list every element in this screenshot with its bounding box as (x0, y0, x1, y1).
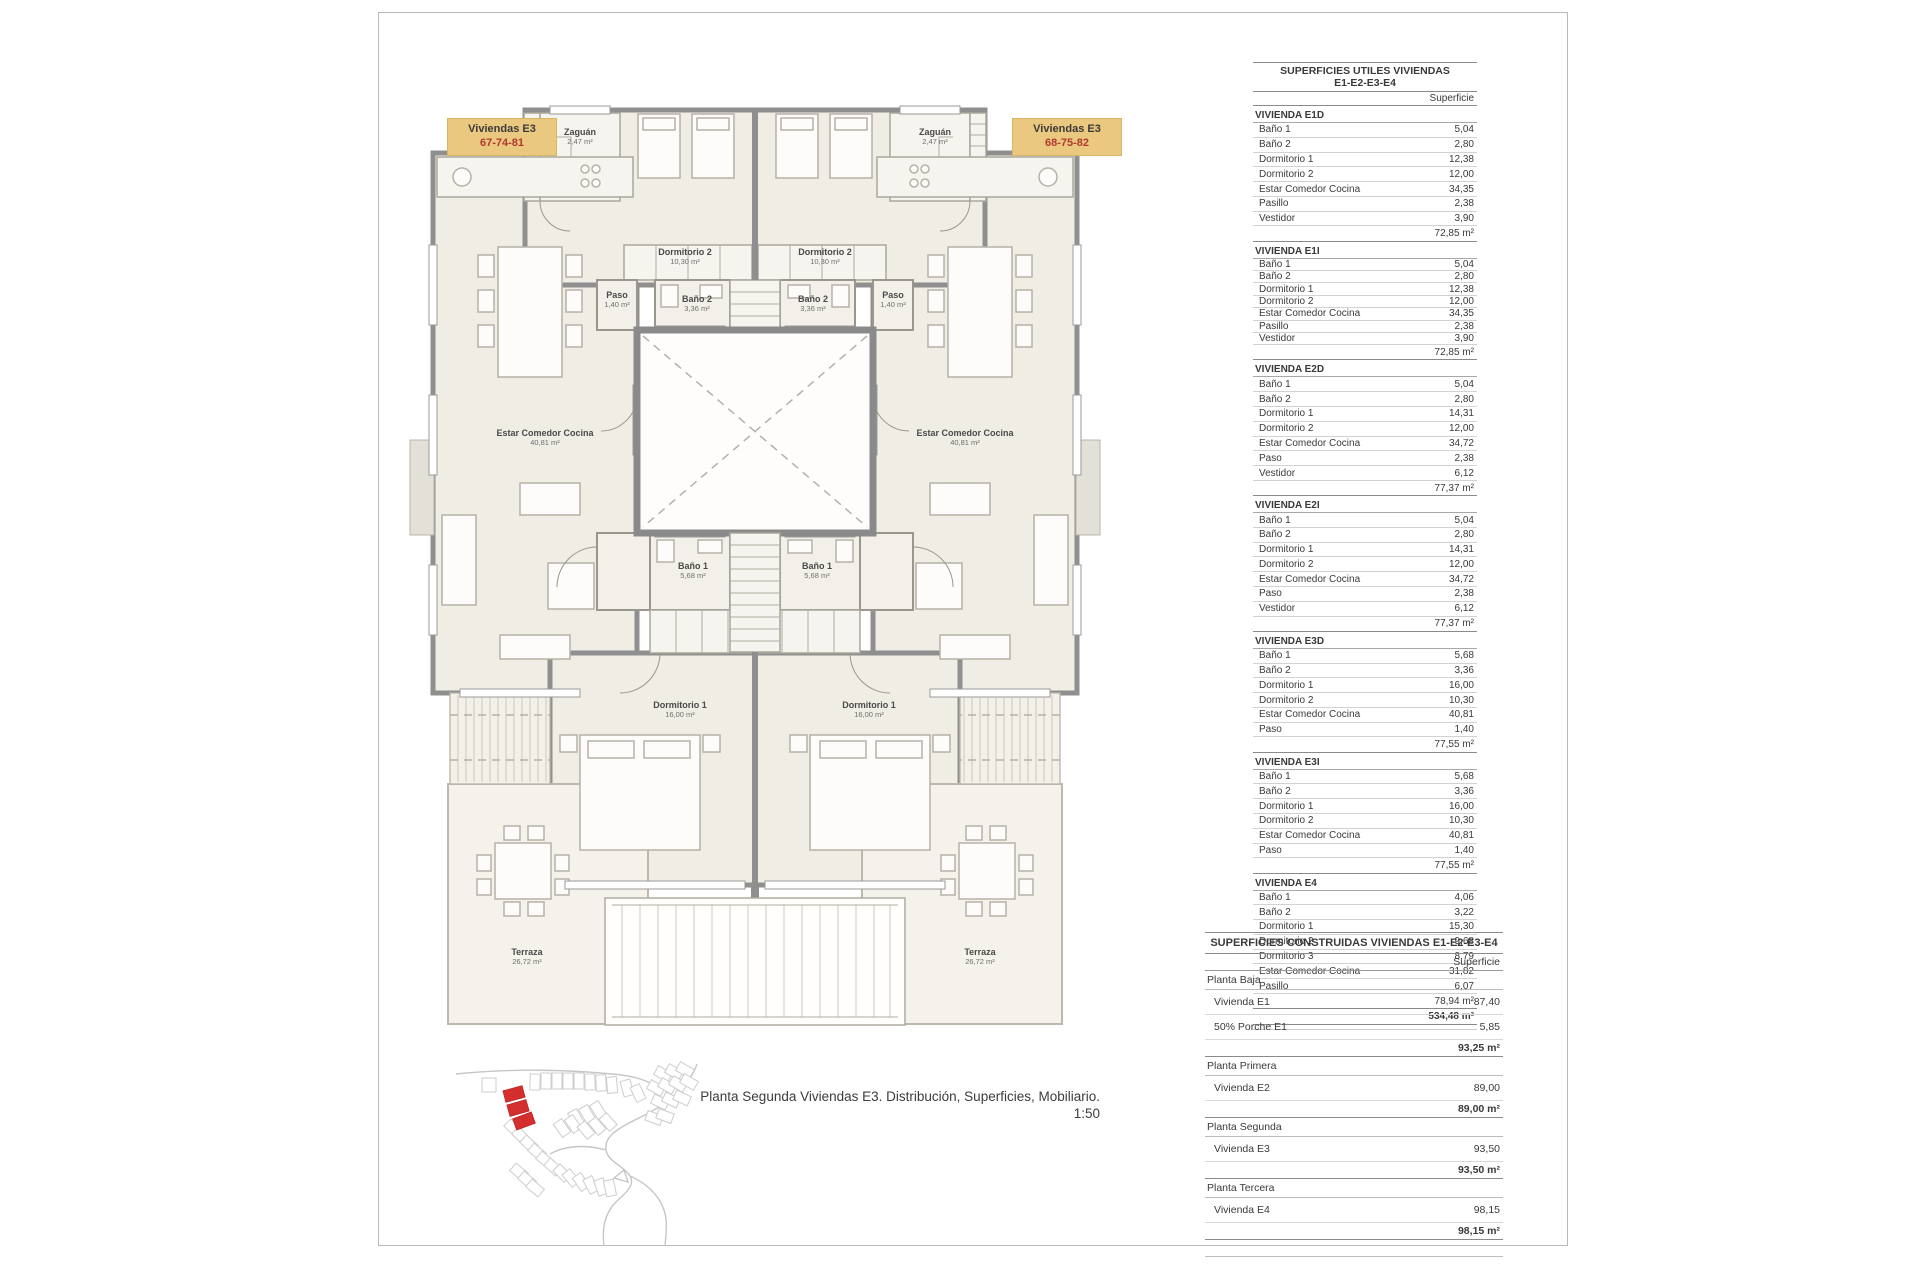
row-label: Estar Comedor Cocina (1259, 184, 1360, 195)
superficies-construidas-table: SUPERFICIES CONSTRUIDAS VIVIENDAS E1-E2-… (1205, 932, 1503, 1257)
row-value: 2,80 (1455, 394, 1474, 405)
table-row: Vivienda E393,50 (1205, 1137, 1503, 1162)
row-value: 10,30 (1449, 815, 1474, 826)
section-header: VIVIENDA E1D (1253, 109, 1477, 123)
row-label: Vestidor (1259, 213, 1295, 224)
utiles-section: VIVIENDA E1IBaño 15,04Baño 22,80Dormitor… (1253, 245, 1477, 361)
table-row: Pasillo2,38 (1253, 197, 1477, 212)
site-map-unit (541, 1073, 551, 1089)
utiles-table-body: VIVIENDA E1DBaño 15,04Baño 22,80Dormitor… (1253, 109, 1477, 1009)
group-header: Planta Primera (1205, 1057, 1503, 1076)
site-map-unit (585, 1074, 596, 1090)
table-row: Dormitorio 212,00 (1253, 557, 1477, 572)
section-header: VIVIENDA E4 (1253, 877, 1477, 891)
row-value: 3,36 (1455, 665, 1474, 676)
row-label: Dormitorio 2 (1259, 695, 1313, 706)
table-row: Vestidor3,90 (1253, 212, 1477, 227)
row-value: 12,00 (1449, 169, 1474, 180)
row-value: 93,50 (1474, 1143, 1500, 1155)
group-total: 93,50 m² (1205, 1162, 1503, 1179)
utiles-section: VIVIENDA E3IBaño 15,68Baño 23,36Dormitor… (1253, 756, 1477, 874)
row-value: 2,38 (1455, 321, 1474, 332)
utiles-section: VIVIENDA E2DBaño 15,04Baño 22,80Dormitor… (1253, 363, 1477, 496)
table-row: Estar Comedor Cocina34,35 (1253, 182, 1477, 197)
row-label: Vivienda E3 (1214, 1143, 1270, 1155)
table-row: Baño 22,80 (1253, 528, 1477, 543)
row-label: Baño 2 (1259, 907, 1291, 918)
row-value: 6,12 (1455, 603, 1474, 614)
row-value: 1,40 (1455, 724, 1474, 735)
table-row: Dormitorio 212,00 (1253, 167, 1477, 182)
table-row: Estar Comedor Cocina40,81 (1253, 829, 1477, 844)
unit-label-right-numbers: 68-75-82 (1013, 136, 1121, 150)
row-label: Dormitorio 1 (1259, 544, 1313, 555)
row-label: Baño 1 (1259, 892, 1291, 903)
row-label: Vivienda E4 (1214, 1204, 1270, 1216)
section-header: VIVIENDA E2D (1253, 363, 1477, 377)
row-value: 2,80 (1455, 271, 1474, 282)
row-label: Dormitorio 2 (1259, 815, 1313, 826)
section-total: 72,85 m² (1253, 226, 1477, 241)
group-total: 98,15 m² (1205, 1223, 1503, 1240)
row-label: Baño 1 (1259, 650, 1291, 661)
row-label: Baño 2 (1259, 786, 1291, 797)
row-value: 40,81 (1449, 709, 1474, 720)
row-value: 10,30 (1449, 695, 1474, 706)
section-header: VIVIENDA E3D (1253, 635, 1477, 649)
row-label: Dormitorio 1 (1259, 284, 1313, 295)
table-row: Baño 23,22 (1253, 905, 1477, 920)
table-row: Estar Comedor Cocina34,72 (1253, 572, 1477, 587)
table-row: Baño 22,80 (1253, 271, 1477, 283)
construidas-col-header: Superficie (1205, 954, 1503, 971)
row-label: Estar Comedor Cocina (1259, 438, 1360, 449)
row-value: 87,40 (1474, 996, 1500, 1008)
section-total: 77,37 m² (1253, 481, 1477, 496)
table-row: Vivienda E498,15 (1205, 1198, 1503, 1223)
table-row: Vestidor6,12 (1253, 466, 1477, 481)
row-label: Paso (1259, 588, 1282, 599)
table-row: Dormitorio 210,30 (1253, 814, 1477, 829)
table-row: Estar Comedor Cocina34,72 (1253, 437, 1477, 452)
table-row: Pasillo2,38 (1253, 321, 1477, 333)
row-label: Paso (1259, 845, 1282, 856)
table-row: Baño 15,04 (1253, 123, 1477, 138)
section-total: 77,37 m² (1253, 617, 1477, 632)
row-value: 12,00 (1449, 559, 1474, 570)
row-label: Baño 2 (1259, 394, 1291, 405)
row-value: 5,04 (1455, 379, 1474, 390)
table-row: Baño 15,68 (1253, 649, 1477, 664)
row-value: 12,00 (1449, 423, 1474, 434)
unit-label-left-numbers: 67-74-81 (448, 136, 556, 150)
table-row: Dormitorio 212,00 (1253, 422, 1477, 437)
row-value: 89,00 (1474, 1082, 1500, 1094)
floor-plan-drawing (400, 95, 1130, 1045)
row-label: Paso (1259, 724, 1282, 735)
utiles-section: VIVIENDA E3DBaño 15,68Baño 23,36Dormitor… (1253, 635, 1477, 753)
row-value: 2,80 (1455, 139, 1474, 150)
row-label: Dormitorio 2 (1259, 559, 1313, 570)
row-label: Paso (1259, 453, 1282, 464)
row-value: 4,06 (1455, 892, 1474, 903)
row-label: Estar Comedor Cocina (1259, 830, 1360, 841)
table-row: Dormitorio 112,38 (1253, 283, 1477, 295)
row-label: Vestidor (1259, 333, 1295, 344)
table-row: Vestidor3,90 (1253, 333, 1477, 345)
table-row: Baño 14,06 (1253, 891, 1477, 906)
site-map-unit (552, 1073, 562, 1089)
row-label: 50% Porche E1 (1214, 1021, 1287, 1033)
section-total: 77,55 m² (1253, 737, 1477, 752)
table-row: Estar Comedor Cocina40,81 (1253, 708, 1477, 723)
table-row: Dormitorio 114,31 (1253, 407, 1477, 422)
row-value: 5,68 (1455, 650, 1474, 661)
row-value: 14,31 (1449, 408, 1474, 419)
unit-label-right-title: Viviendas E3 (1013, 122, 1121, 136)
table-row: Baño 23,36 (1253, 664, 1477, 679)
drawing-sheet: Viviendas E3 67-74-81 Viviendas E3 68-75… (0, 0, 1920, 1280)
row-label: Baño 1 (1259, 771, 1291, 782)
table-row: Dormitorio 212,00 (1253, 296, 1477, 308)
table-row: Baño 22,80 (1253, 138, 1477, 153)
row-value: 34,72 (1449, 438, 1474, 449)
row-label: Baño 1 (1259, 259, 1291, 270)
utiles-table-title: SUPERFICIES UTILES VIVIENDAS E1-E2-E3-E4 (1253, 62, 1477, 92)
row-label: Dormitorio 1 (1259, 408, 1313, 419)
table-row: Dormitorio 116,00 (1253, 678, 1477, 693)
section-header: VIVIENDA E3I (1253, 756, 1477, 770)
row-value: 5,04 (1455, 259, 1474, 270)
row-value: 5,04 (1455, 124, 1474, 135)
row-value: 34,72 (1449, 574, 1474, 585)
superficies-utiles-table: SUPERFICIES UTILES VIVIENDAS E1-E2-E3-E4… (1253, 62, 1477, 1030)
table-row: Estar Comedor Cocina34,35 (1253, 308, 1477, 320)
construidas-table-footer (1205, 1240, 1503, 1257)
row-label: Dormitorio 2 (1259, 296, 1313, 307)
row-value: 2,38 (1455, 198, 1474, 209)
row-label: Dormitorio 1 (1259, 921, 1313, 932)
row-label: Baño 1 (1259, 379, 1291, 390)
table-row: Vivienda E187,40 (1205, 990, 1503, 1015)
table-row: Paso1,40 (1253, 723, 1477, 738)
table-row: Dormitorio 114,31 (1253, 543, 1477, 558)
site-map-unit (606, 1077, 617, 1094)
table-row: Dormitorio 112,38 (1253, 153, 1477, 168)
unit-label-left: Viviendas E3 67-74-81 (447, 118, 557, 156)
site-map-highlighted-unit (503, 1086, 525, 1103)
table-row: Paso2,38 (1253, 451, 1477, 466)
table-row: Baño 15,68 (1253, 770, 1477, 785)
row-value: 6,12 (1455, 468, 1474, 479)
row-value: 3,36 (1455, 786, 1474, 797)
row-value: 40,81 (1449, 830, 1474, 841)
table-row: Baño 15,04 (1253, 259, 1477, 271)
unit-label-right: Viviendas E3 68-75-82 (1012, 118, 1122, 156)
site-map-unit (574, 1073, 584, 1089)
row-label: Dormitorio 2 (1259, 169, 1313, 180)
construidas-table-body: Planta BajaVivienda E187,4050% Porche E1… (1205, 971, 1503, 1240)
row-label: Baño 2 (1259, 271, 1291, 282)
row-value: 2,38 (1455, 453, 1474, 464)
table-row: Paso1,40 (1253, 844, 1477, 859)
row-label: Dormitorio 1 (1259, 680, 1313, 691)
row-label: Vivienda E2 (1214, 1082, 1270, 1094)
row-value: 5,85 (1480, 1021, 1500, 1033)
site-map-unit (563, 1073, 573, 1089)
row-label: Baño 1 (1259, 515, 1291, 526)
row-label: Dormitorio 2 (1259, 423, 1313, 434)
row-label: Pasillo (1259, 198, 1288, 209)
row-value: 12,00 (1449, 296, 1474, 307)
row-value: 3,22 (1455, 907, 1474, 918)
row-label: Pasillo (1259, 321, 1288, 332)
section-total: 77,55 m² (1253, 858, 1477, 873)
row-label: Estar Comedor Cocina (1259, 709, 1360, 720)
unit-label-left-title: Viviendas E3 (448, 122, 556, 136)
row-value: 98,15 (1474, 1204, 1500, 1216)
row-label: Vestidor (1259, 603, 1295, 614)
site-map-unit (482, 1078, 496, 1092)
row-value: 16,00 (1449, 680, 1474, 691)
row-value: 5,68 (1455, 771, 1474, 782)
utiles-section: VIVIENDA E1DBaño 15,04Baño 22,80Dormitor… (1253, 109, 1477, 242)
row-label: Vestidor (1259, 468, 1295, 479)
utiles-col-header: Superficie (1253, 92, 1477, 106)
row-label: Baño 2 (1259, 665, 1291, 676)
site-location-map (452, 1058, 708, 1258)
row-value: 16,00 (1449, 801, 1474, 812)
row-value: 34,35 (1449, 184, 1474, 195)
group-total: 93,25 m² (1205, 1040, 1503, 1057)
row-value: 34,35 (1449, 308, 1474, 319)
group-header: Planta Baja (1205, 971, 1503, 990)
table-row: Baño 22,80 (1253, 392, 1477, 407)
row-value: 12,38 (1449, 284, 1474, 295)
table-row: Dormitorio 210,30 (1253, 693, 1477, 708)
row-label: Baño 2 (1259, 529, 1291, 540)
row-value: 1,40 (1455, 845, 1474, 856)
row-label: Estar Comedor Cocina (1259, 308, 1360, 319)
row-label: Estar Comedor Cocina (1259, 574, 1360, 585)
section-header: VIVIENDA E1I (1253, 245, 1477, 259)
caption-title: Planta Segunda Viviendas E3. Distribució… (700, 1088, 1100, 1105)
row-value: 3,90 (1455, 333, 1474, 344)
table-row: Paso2,38 (1253, 587, 1477, 602)
table-row: Baño 15,04 (1253, 513, 1477, 528)
row-value: 14,31 (1449, 544, 1474, 555)
row-value: 12,38 (1449, 154, 1474, 165)
utiles-section: VIVIENDA E2IBaño 15,04Baño 22,80Dormitor… (1253, 499, 1477, 632)
row-label: Baño 1 (1259, 124, 1291, 135)
section-total: 72,85 m² (1253, 345, 1477, 360)
group-header: Planta Segunda (1205, 1118, 1503, 1137)
row-label: Dormitorio 1 (1259, 801, 1313, 812)
caption-scale: 1:50 (700, 1105, 1100, 1122)
table-row: Baño 23,36 (1253, 784, 1477, 799)
row-value: 15,30 (1449, 921, 1474, 932)
construidas-table-title: SUPERFICIES CONSTRUIDAS VIVIENDAS E1-E2-… (1205, 932, 1503, 954)
sheet-caption: Planta Segunda Viviendas E3. Distribució… (700, 1088, 1100, 1122)
table-row: 50% Porche E15,85 (1205, 1015, 1503, 1040)
group-total: 89,00 m² (1205, 1101, 1503, 1118)
row-label: Dormitorio 1 (1259, 154, 1313, 165)
section-header: VIVIENDA E2I (1253, 499, 1477, 513)
group-header: Planta Tercera (1205, 1179, 1503, 1198)
table-row: Baño 15,04 (1253, 377, 1477, 392)
row-value: 5,04 (1455, 515, 1474, 526)
site-map-unit (630, 1084, 646, 1103)
site-map-unit (596, 1075, 607, 1092)
row-value: 2,38 (1455, 588, 1474, 599)
row-label: Vivienda E1 (1214, 996, 1270, 1008)
table-row: Vivienda E289,00 (1205, 1076, 1503, 1101)
row-value: 3,90 (1455, 213, 1474, 224)
site-map-drawing (452, 1058, 708, 1258)
table-row: Dormitorio 116,00 (1253, 799, 1477, 814)
site-map-unit (530, 1074, 541, 1090)
row-label: Baño 2 (1259, 139, 1291, 150)
floor-plan: Viviendas E3 67-74-81 Viviendas E3 68-75… (400, 95, 1130, 1045)
row-value: 2,80 (1455, 529, 1474, 540)
table-row: Vestidor6,12 (1253, 602, 1477, 617)
